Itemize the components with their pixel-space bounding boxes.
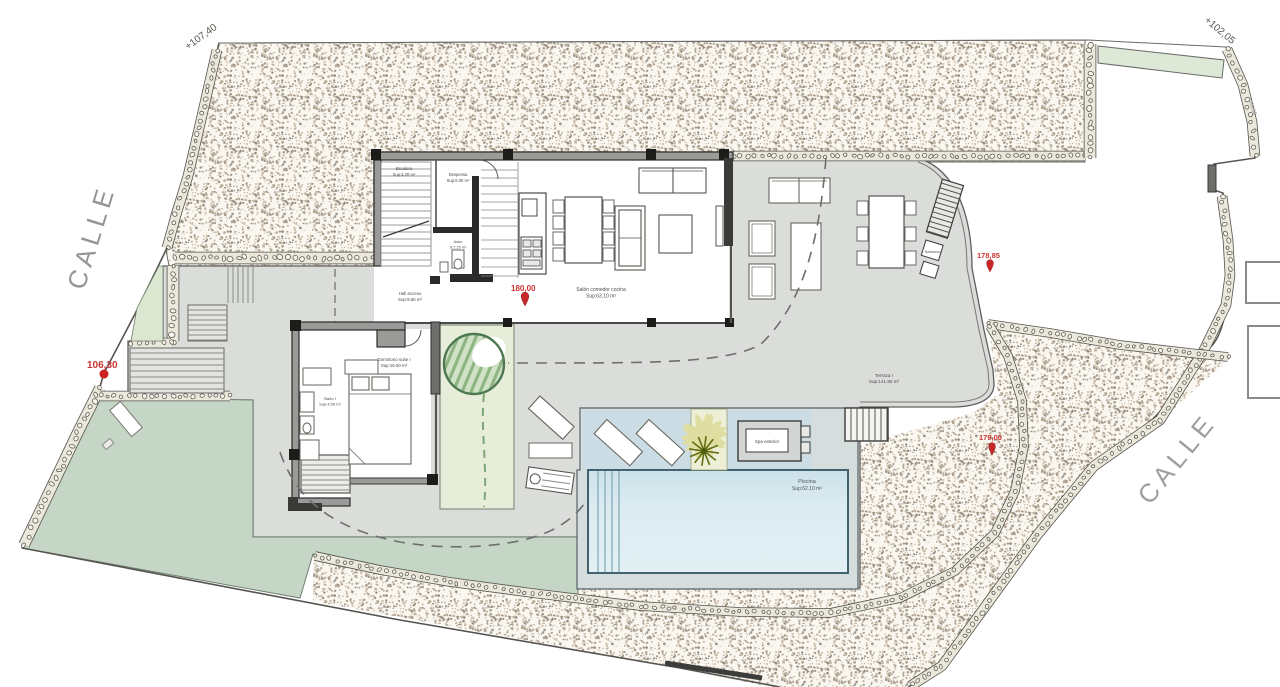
svg-text:Sup:63.10 m²: Sup:63.10 m² xyxy=(586,294,616,300)
svg-text:Escalera: Escalera xyxy=(396,166,413,171)
svg-text:S:2.25 m²: S:2.25 m² xyxy=(450,245,467,249)
svg-text:Baño I: Baño I xyxy=(324,396,336,401)
svg-text:Salón comedor cocina: Salón comedor cocina xyxy=(576,287,626,293)
svg-text:Barbacoa: Barbacoa xyxy=(925,250,942,254)
svg-text:Sup:4.20 m²: Sup:4.20 m² xyxy=(393,172,416,177)
svg-text:Dormitorio suite I: Dormitorio suite I xyxy=(377,357,410,362)
svg-text:Sup:9.60 m²: Sup:9.60 m² xyxy=(398,297,422,302)
svg-text:180,00: 180,00 xyxy=(511,284,536,293)
svg-text:178,85: 178,85 xyxy=(977,251,1000,260)
svg-text:Terraza I: Terraza I xyxy=(875,373,893,378)
svg-text:Despensa: Despensa xyxy=(449,172,469,177)
svg-text:Sup:4.50 m²: Sup:4.50 m² xyxy=(319,402,341,407)
svg-text:Sup:141.80 m²: Sup:141.80 m² xyxy=(869,379,900,384)
svg-text:Sup:62.10 m²: Sup:62.10 m² xyxy=(792,486,822,492)
svg-text:Sup:6.00 m²: Sup:6.00 m² xyxy=(447,178,470,183)
svg-text:179,00: 179,00 xyxy=(979,433,1002,442)
svg-text:106,30: 106,30 xyxy=(87,360,118,371)
svg-text:Hall acceso: Hall acceso xyxy=(399,291,422,296)
svg-text:Spa exterior: Spa exterior xyxy=(755,439,780,444)
svg-text:Sup:16.50 m²: Sup:16.50 m² xyxy=(381,363,408,368)
svg-text:Aseo: Aseo xyxy=(454,240,463,244)
svg-text:Piscina: Piscina xyxy=(798,479,817,485)
